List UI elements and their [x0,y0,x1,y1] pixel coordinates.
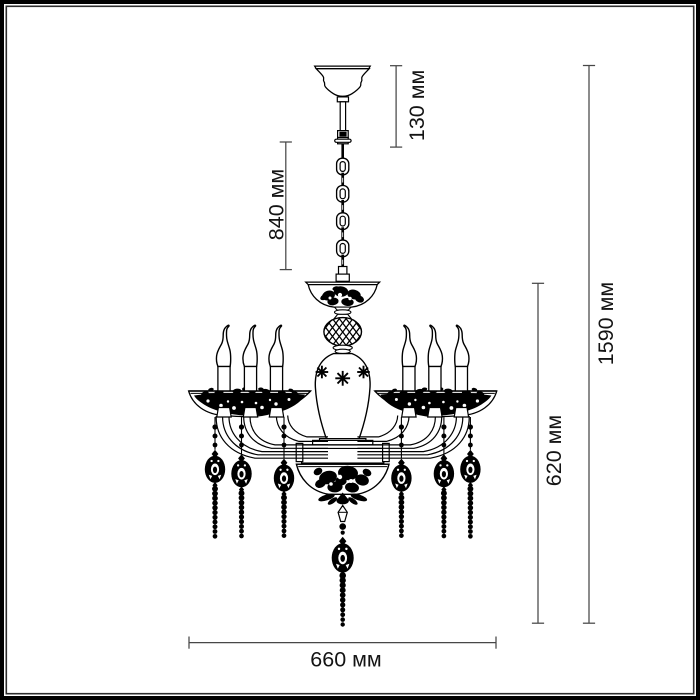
svg-text:660 мм: 660 мм [310,647,381,671]
svg-text:1590 мм: 1590 мм [594,282,618,365]
svg-text:130 мм: 130 мм [405,70,429,141]
svg-text:840 мм: 840 мм [264,169,288,240]
svg-text:620 мм: 620 мм [542,415,566,486]
